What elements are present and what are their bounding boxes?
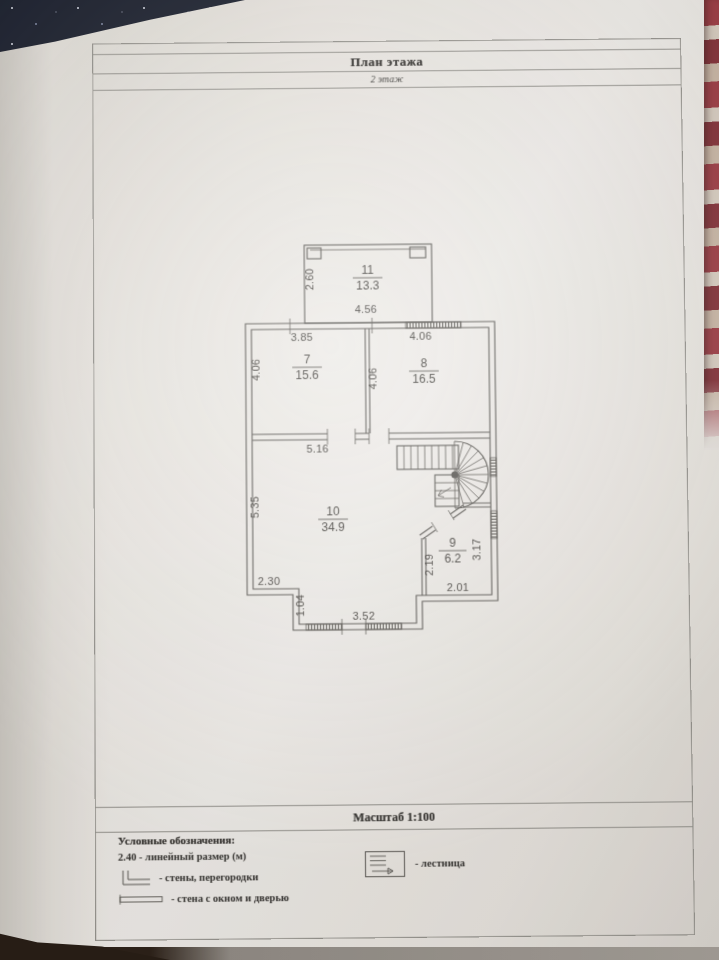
room-9-number: 9 — [449, 536, 456, 550]
stairs-icon — [364, 850, 406, 878]
legend-right-column: - лестница — [364, 849, 465, 878]
legend-item-wall-window-door: - стена с окном и дверью — [118, 892, 289, 906]
staircase-symbol — [397, 441, 489, 509]
dim-room9-right: 3.17 — [471, 538, 483, 560]
room-8-number: 8 — [420, 356, 427, 370]
walls-icon — [118, 868, 152, 888]
dim-room9-left: 2.19 — [424, 553, 436, 575]
legend: Условные обозначения: 2.40 - линейный ра… — [96, 827, 694, 940]
room-7-number: 7 — [304, 352, 311, 366]
legend-item-linear-dimension: 2.40 - линейный размер (м) — [118, 851, 289, 864]
room-8-area: 16.5 — [412, 372, 436, 386]
stair-direction-arrow — [438, 488, 451, 497]
legend-linear-dimension-label: 2.40 - линейный размер (м) — [118, 851, 246, 863]
dim-room10-left: 5.35 — [249, 496, 261, 518]
wall-window-door-icon — [118, 893, 164, 905]
legend-wall-window-door-label: - стена с окном и дверью — [171, 893, 289, 905]
legend-item-walls: - стены, перегородки — [118, 867, 289, 889]
dim-room10-step: 1.04 — [295, 594, 307, 616]
legend-heading: Условные обозначения: — [118, 834, 289, 848]
room-10-area: 34.9 — [322, 520, 346, 534]
dim-room11-left: 2.60 — [304, 268, 316, 290]
dim-room10-bay-bottom: 3.52 — [352, 611, 375, 623]
dim-room8-top: 4.06 — [409, 331, 431, 343]
dim-room7-top: 3.85 — [291, 332, 313, 344]
floor-plan-svg: 11 13.3 7 15.6 8 16.5 10 34.9 9 6.2 — [93, 85, 692, 807]
room-11-number: 11 — [361, 263, 374, 277]
room-7-area: 15.6 — [296, 368, 320, 382]
dim-room11-bottom: 4.56 — [355, 304, 377, 316]
room-9-area: 6.2 — [444, 551, 461, 565]
sheet-frame: План этажа 2 этаж — [92, 38, 695, 941]
dim-room8-left: 4.06 — [367, 367, 379, 389]
dim-room7-left: 4.06 — [251, 359, 263, 381]
legend-left-column: Условные обозначения: 2.40 - линейный ра… — [118, 834, 289, 906]
legend-walls-label: - стены, перегородки — [159, 872, 258, 884]
floor-plan-area: 11 13.3 7 15.6 8 16.5 10 34.9 9 6.2 — [93, 85, 692, 808]
room-labels: 11 13.3 7 15.6 8 16.5 10 34.9 9 6.2 — [291, 262, 466, 567]
legend-stairs-label: - лестница — [415, 858, 465, 869]
photographed-floor-plan-sheet: План этажа 2 этаж — [0, 0, 719, 960]
dim-room9-bottom: 2.01 — [447, 582, 470, 594]
dim-room10-bottom-left: 2.30 — [258, 576, 281, 588]
room-10-number: 10 — [326, 504, 340, 518]
room-11-area: 13.3 — [356, 279, 380, 293]
carpet-right-fade — [704, 380, 719, 450]
dim-room10-top: 5.16 — [306, 443, 328, 455]
